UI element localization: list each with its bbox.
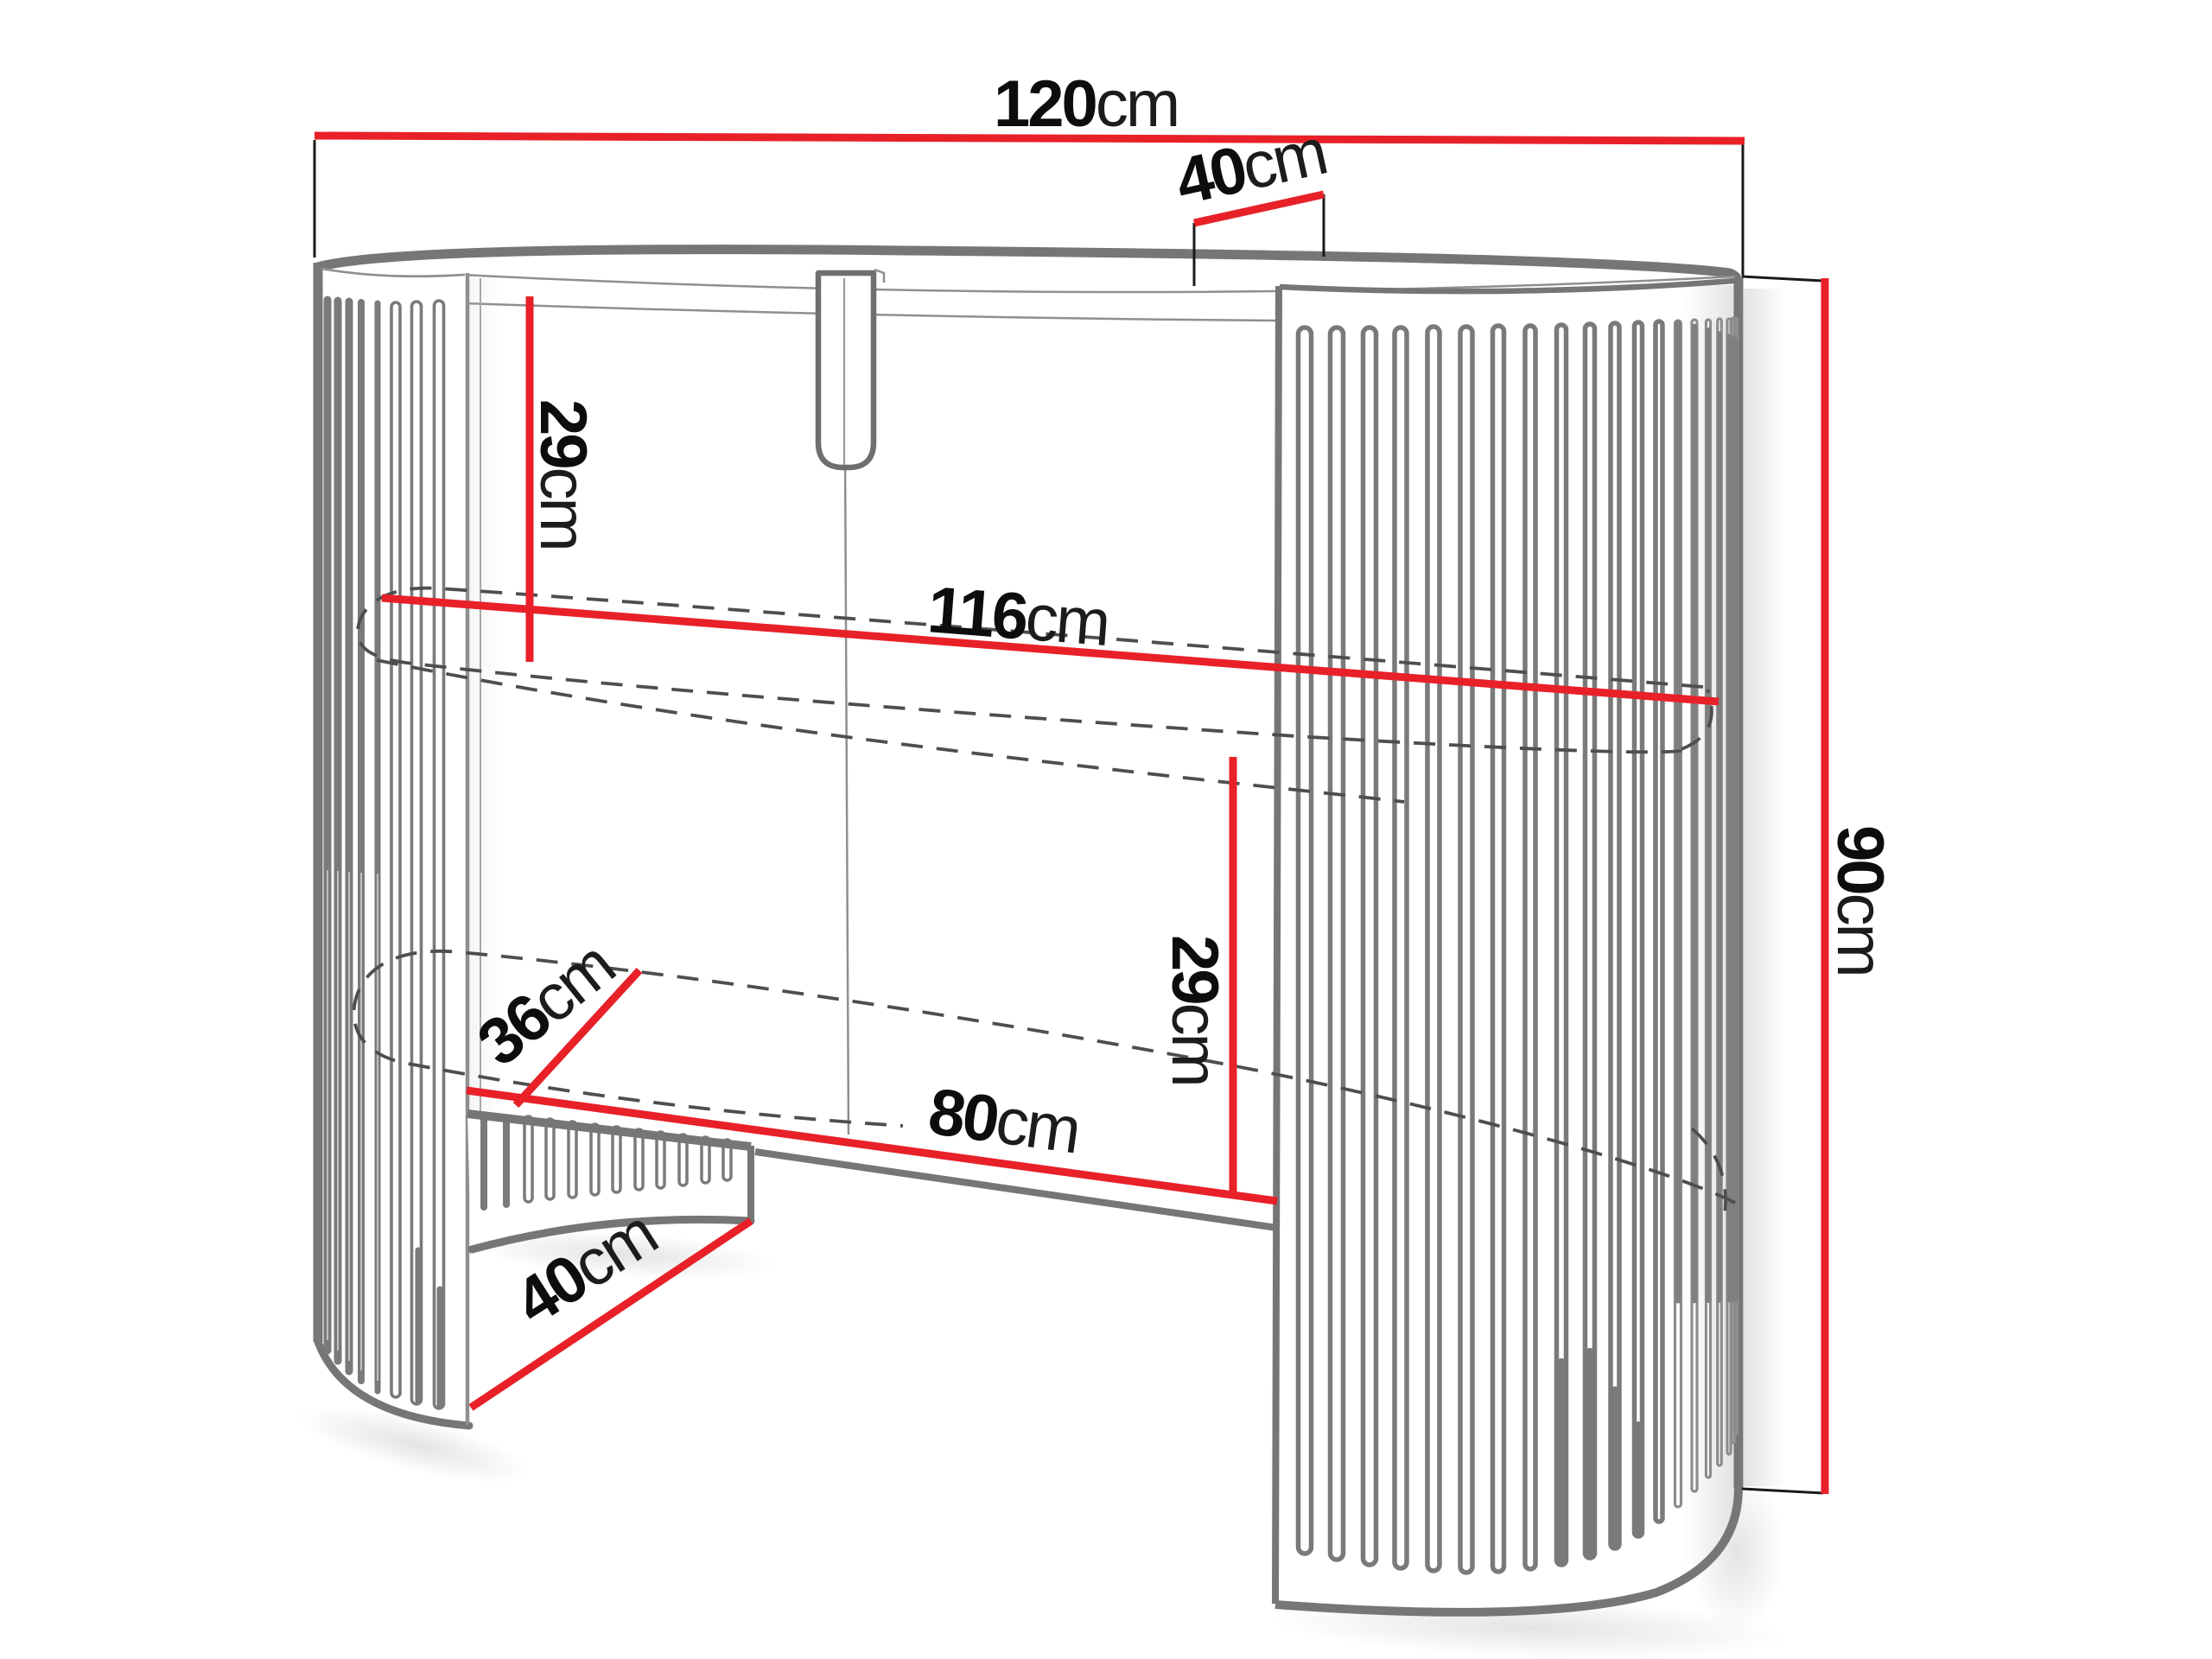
svg-text:120cm: 120cm [994, 67, 1178, 141]
svg-text:90cm: 90cm [1823, 825, 1897, 976]
svg-text:29cm: 29cm [526, 399, 600, 550]
svg-text:29cm: 29cm [1158, 935, 1231, 1085]
svg-text:116cm: 116cm [925, 573, 1111, 660]
svg-text:40cm: 40cm [1169, 115, 1332, 219]
